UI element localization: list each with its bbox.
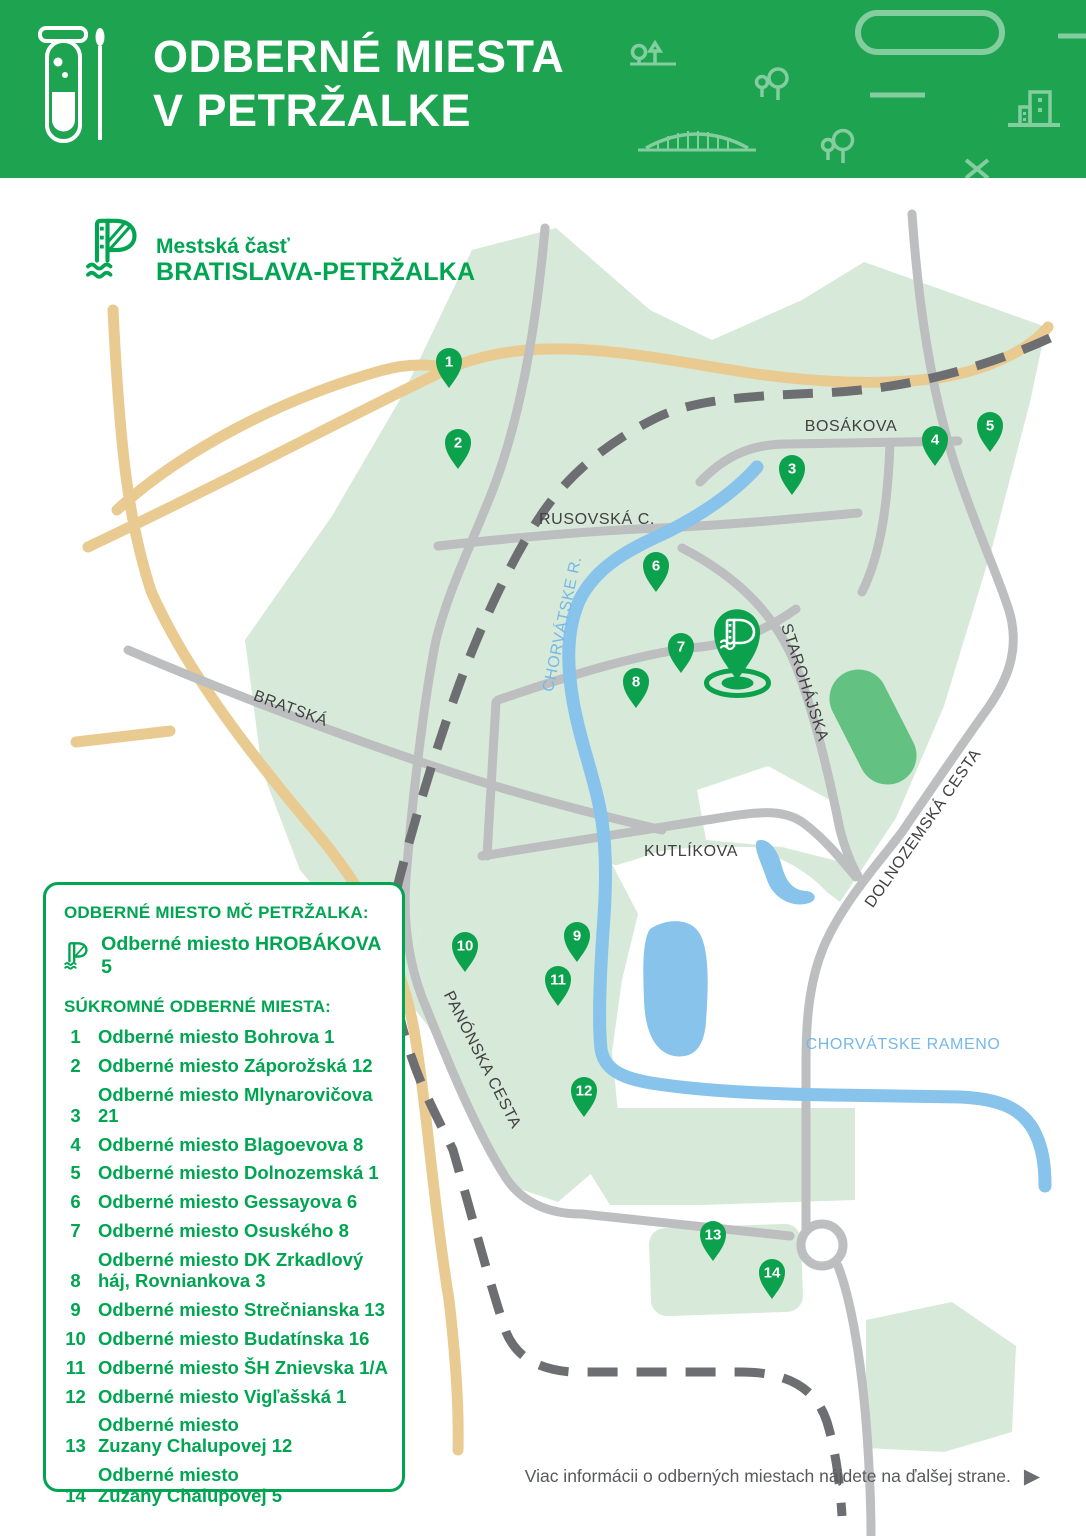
svg-text:13: 13 <box>705 1227 722 1244</box>
legend-title-private: SÚKROMNÉ ODBERNÉ MIESTA: <box>64 997 388 1017</box>
tree-pine-icon <box>630 43 676 64</box>
legend-item-number: 2 <box>62 1056 89 1077</box>
roundabout <box>801 1224 843 1266</box>
district-south-strip <box>560 1108 855 1205</box>
road-dolnozemska-south <box>838 1266 871 1536</box>
buildings-icon <box>1008 92 1060 125</box>
footnote-text: Viac informácii o odberných miestach náj… <box>525 1466 1011 1487</box>
legend-item: 10Odberné miesto Budatínska 16 <box>62 1329 388 1350</box>
district-southeast-patch <box>866 1302 1016 1452</box>
legend-item-number: 8 <box>62 1271 89 1292</box>
legend-item-number: 14 <box>62 1486 89 1507</box>
header-decorations <box>630 13 1086 178</box>
svg-text:6: 6 <box>652 558 660 575</box>
legend-item: 11Odberné miesto ŠH Znievska 1/A <box>62 1358 388 1379</box>
legend-item: 4Odberné miesto Blagoevova 8 <box>62 1135 388 1156</box>
svg-text:9: 9 <box>573 928 581 945</box>
bridge-icon <box>638 131 756 150</box>
legend-box: ODBERNÉ MIESTO MČ PETRŽALKA: Odberné mie… <box>43 882 405 1492</box>
legend-item-number: 1 <box>62 1027 89 1048</box>
brand-name-line2: BRATISLAVA-PETRŽALKA <box>156 259 475 286</box>
legend-item: 1Odberné miesto Bohrova 1 <box>62 1027 388 1048</box>
brand-name-line1: Mestská časť <box>156 235 475 259</box>
legend-item: 9Odberné miesto Strečnianska 13 <box>62 1300 388 1321</box>
svg-text:3: 3 <box>788 461 796 478</box>
legend-title-public: ODBERNÉ MIESTO MČ PETRŽALKA: <box>64 903 388 923</box>
svg-text:1: 1 <box>445 354 453 371</box>
test-tube-icon <box>40 28 86 141</box>
lake <box>643 921 707 1056</box>
svg-text:5: 5 <box>986 418 994 435</box>
water-label-chorvatske-rameno: CHORVÁTSKE RAMENO <box>806 1034 1001 1053</box>
street-label-rusovska: RUSOVSKÁ C. <box>539 509 655 528</box>
arrow-right-icon: ▶ <box>1024 1466 1040 1487</box>
legend-item: 5Odberné miesto Dolnozemská 1 <box>62 1163 388 1184</box>
page: BOSÁKOVA RUSOVSKÁ C. BRATSKÁ STAROHÁJSKA… <box>0 0 1086 1536</box>
page-title-line1: ODBERNÉ MIESTA <box>153 30 564 84</box>
legend-item: 14Odberné miestoZuzany Chalupovej 5 <box>62 1465 388 1507</box>
svg-text:8: 8 <box>632 674 640 691</box>
trees-icon-2 <box>823 131 853 164</box>
legend-item: 12Odberné miesto Vigľašská 1 <box>62 1387 388 1408</box>
street-label-kutlikova: KUTLÍKOVA <box>644 841 738 860</box>
legend-item: 2Odberné miesto Záporožská 12 <box>62 1056 388 1077</box>
svg-text:4: 4 <box>931 432 940 449</box>
svg-text:14: 14 <box>764 1265 781 1282</box>
pill-shape-icon <box>858 13 1002 52</box>
page-title-line2: V PETRŽALKE <box>153 84 564 138</box>
legend-item-number: 7 <box>62 1221 89 1242</box>
legend-item: 6Odberné miesto Gessayova 6 <box>62 1192 388 1213</box>
highway-stub <box>76 731 170 742</box>
page-title: ODBERNÉ MIESTA V PETRŽALKE <box>153 30 564 138</box>
brand-logo: Mestská časť BRATISLAVA-PETRŽALKA <box>85 212 475 288</box>
legend-public-item: Odberné miesto HROBÁKOVA 5 <box>64 933 388 979</box>
legend-item: 13Odberné miestoZuzany Chalupovej 12 <box>62 1415 388 1457</box>
legend-item: 7Odberné miesto Osuského 8 <box>62 1221 388 1242</box>
petrzalka-logo-icon <box>85 212 145 288</box>
trees-icon-1 <box>757 69 788 100</box>
swab-icon <box>96 28 105 140</box>
legend-item: 3Odberné miesto Mlynarovičova 21 <box>62 1085 388 1127</box>
legend-item-number: 4 <box>62 1135 89 1156</box>
header: ODBERNÉ MIESTA V PETRŽALKE <box>0 0 1086 178</box>
footnote: Viac informácii o odberných miestach náj… <box>500 1466 1040 1487</box>
cross-mark-icon <box>966 160 988 178</box>
legend-item: 8Odberné miesto DK Zrkadlovýháj, Rovnian… <box>62 1250 388 1292</box>
svg-text:7: 7 <box>677 639 685 656</box>
legend-item-number: 10 <box>62 1329 89 1350</box>
petrzalka-logo-icon <box>64 940 91 973</box>
svg-text:2: 2 <box>454 435 462 452</box>
svg-text:10: 10 <box>457 938 474 955</box>
legend-item-number: 6 <box>62 1192 89 1213</box>
legend-item-number: 12 <box>62 1387 89 1408</box>
legend-item-number: 9 <box>62 1300 89 1321</box>
legend-item-number: 5 <box>62 1163 89 1184</box>
svg-text:11: 11 <box>550 972 566 989</box>
legend-item-number: 13 <box>62 1436 89 1457</box>
street-label-bosakova: BOSÁKOVA <box>805 416 898 435</box>
svg-text:12: 12 <box>576 1083 593 1100</box>
legend-public-item-label: Odberné miesto HROBÁKOVA 5 <box>101 933 388 979</box>
legend-item-number: 11 <box>62 1358 89 1379</box>
legend-item-number: 3 <box>62 1106 89 1127</box>
